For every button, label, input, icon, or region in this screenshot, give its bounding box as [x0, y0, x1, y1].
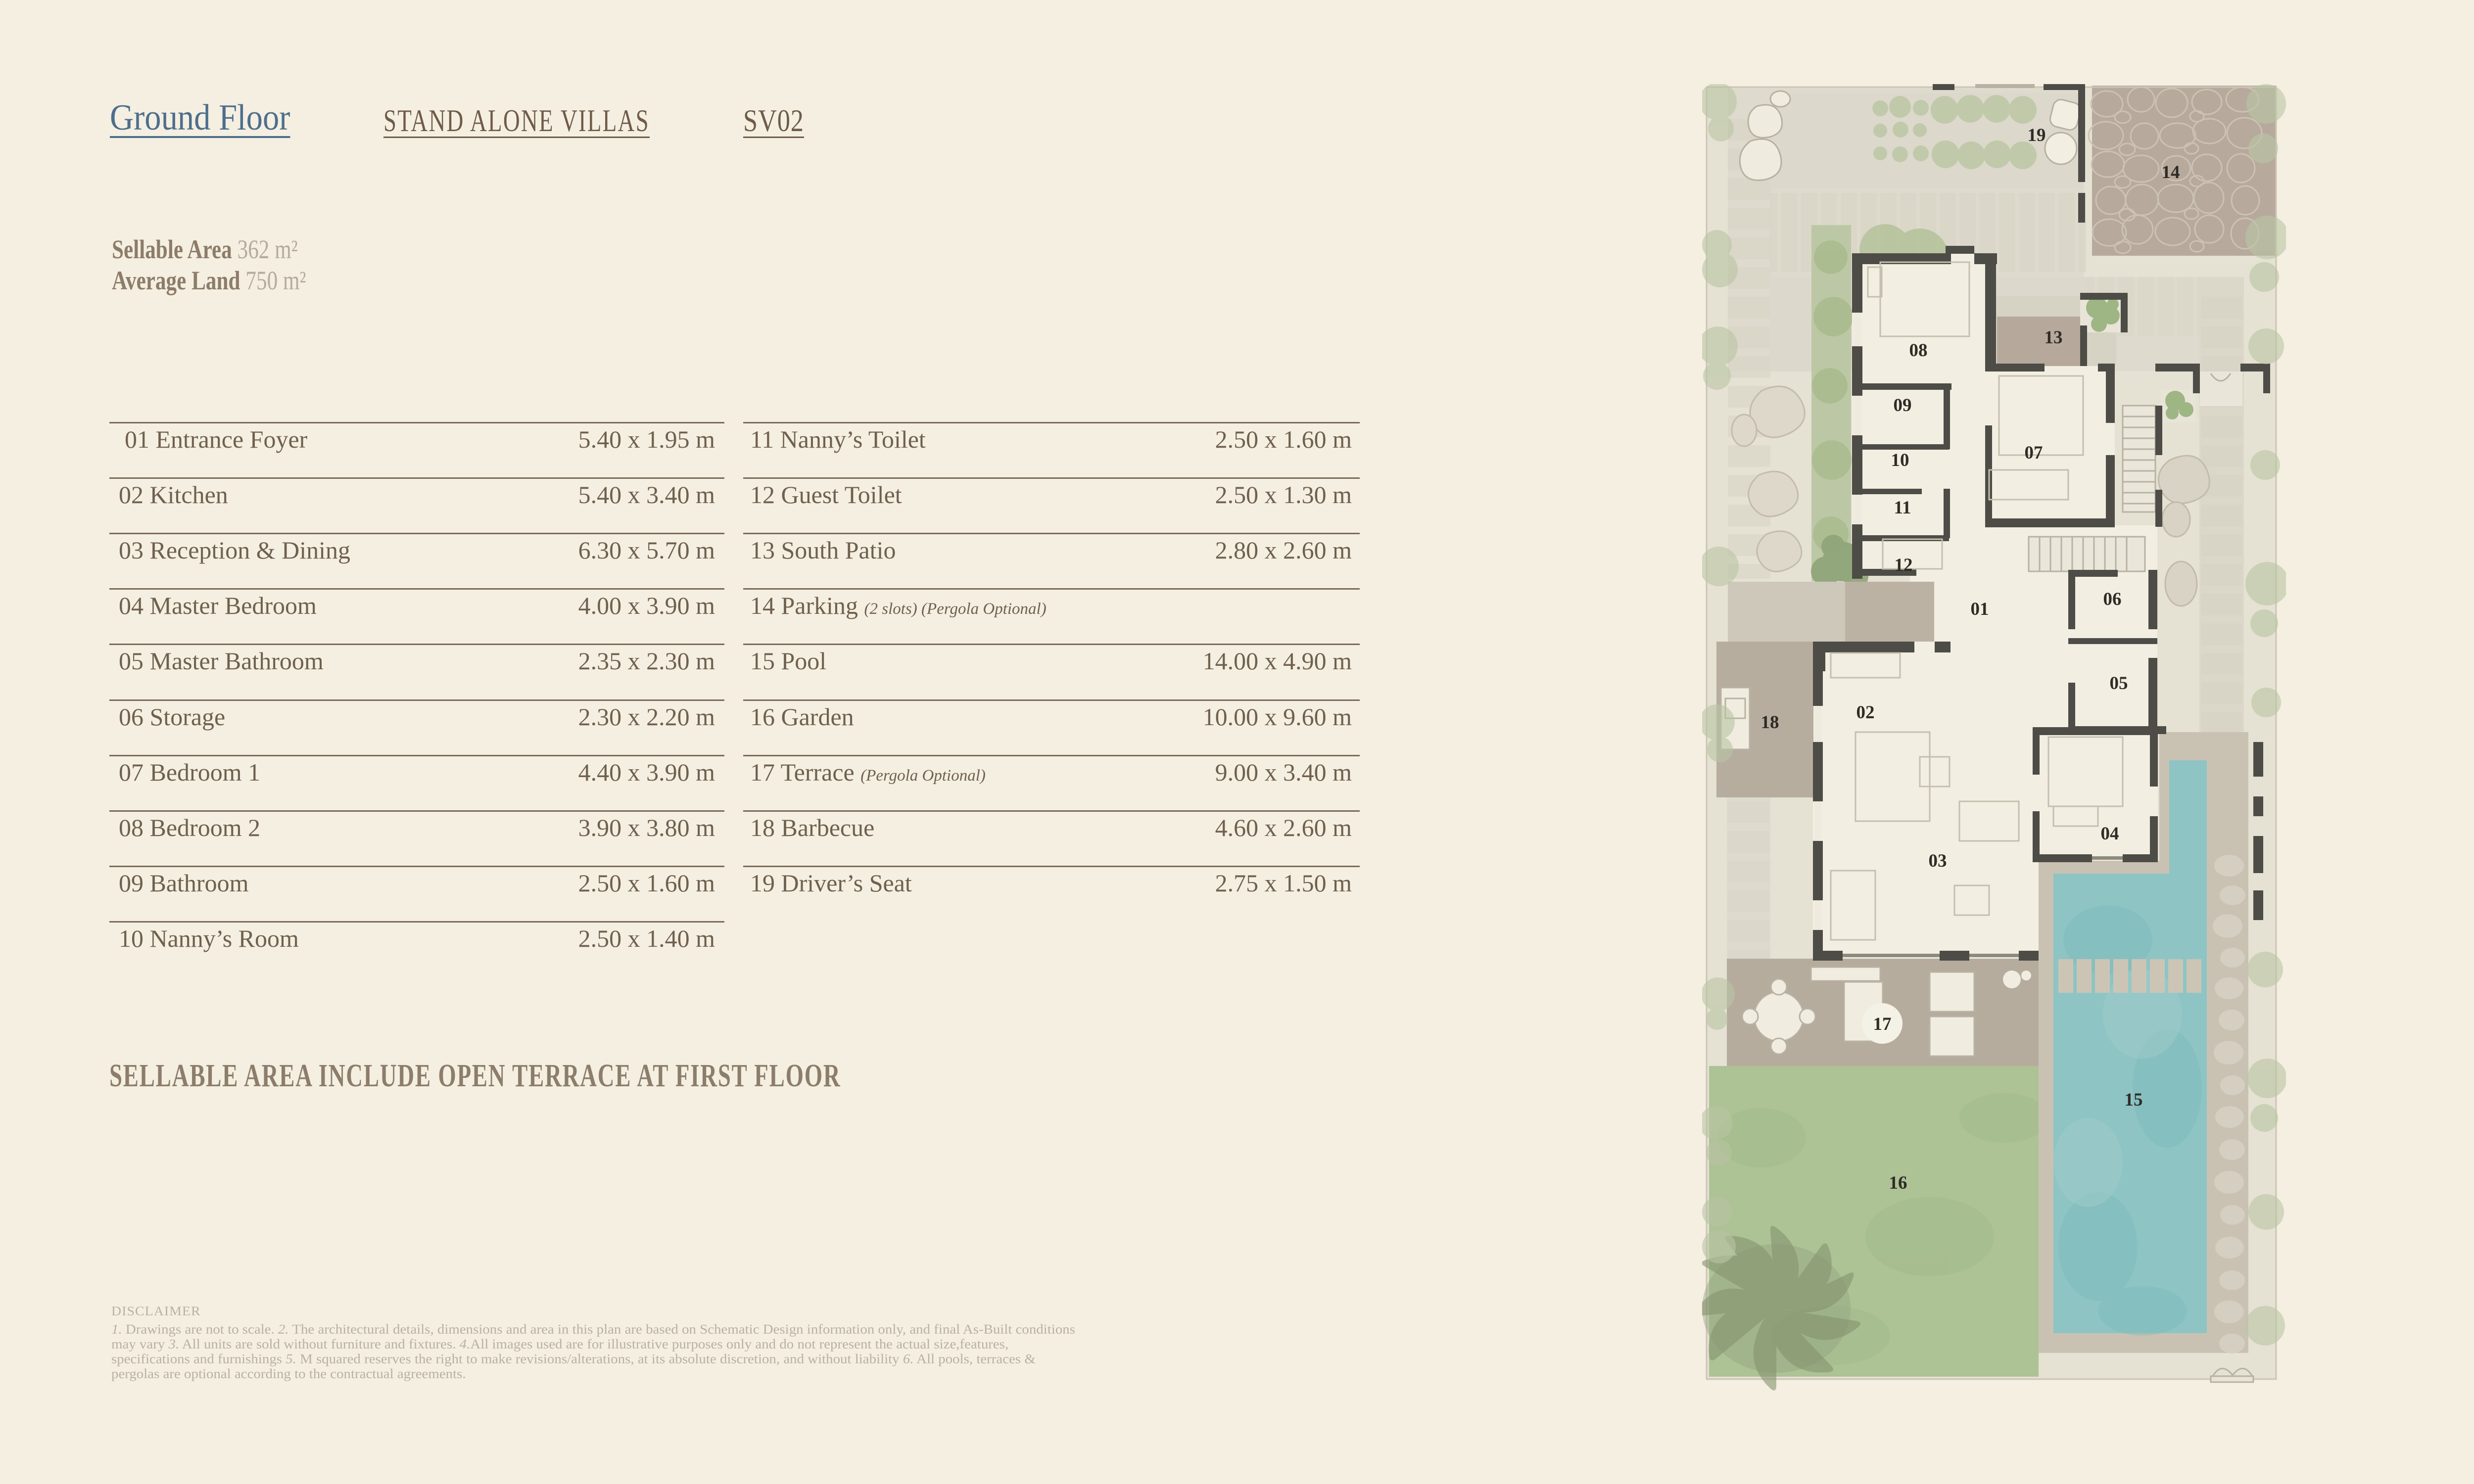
svg-text:08: 08 — [1909, 340, 1928, 361]
svg-text:19: 19 — [2028, 125, 2046, 145]
svg-text:01: 01 — [1971, 599, 1989, 619]
svg-text:06: 06 — [2103, 589, 2122, 609]
svg-text:07: 07 — [2025, 443, 2043, 463]
svg-text:02: 02 — [1856, 702, 1875, 723]
svg-text:13: 13 — [2045, 327, 2063, 348]
svg-text:09: 09 — [1894, 395, 1912, 416]
svg-text:11: 11 — [1894, 498, 1911, 518]
svg-text:14: 14 — [2162, 162, 2180, 183]
svg-text:17: 17 — [1873, 1014, 1892, 1034]
svg-text:15: 15 — [2125, 1090, 2143, 1110]
svg-text:10: 10 — [1891, 450, 1909, 470]
svg-text:12: 12 — [1895, 555, 1913, 575]
svg-text:04: 04 — [2101, 824, 2119, 844]
svg-text:03: 03 — [1929, 851, 1947, 871]
svg-text:18: 18 — [1761, 712, 1779, 733]
svg-text:05: 05 — [2110, 673, 2128, 694]
svg-text:16: 16 — [1889, 1173, 1907, 1193]
